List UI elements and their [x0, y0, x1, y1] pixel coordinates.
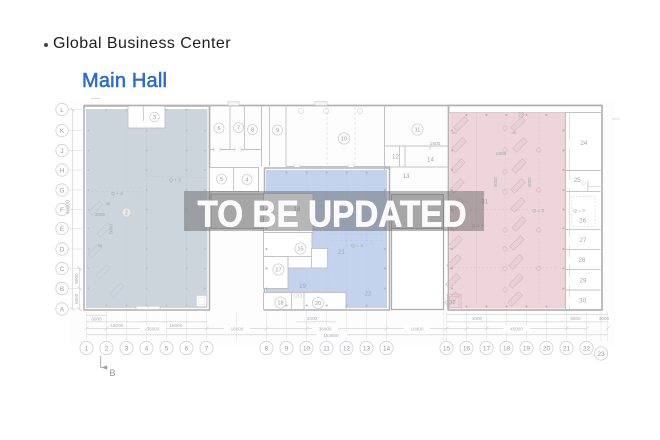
- svg-text:18400: 18400: [411, 327, 424, 332]
- svg-text:30: 30: [579, 298, 586, 305]
- svg-text:2000: 2000: [95, 212, 106, 217]
- svg-text:2: 2: [125, 210, 128, 216]
- svg-text:B: B: [60, 286, 64, 293]
- svg-text:22: 22: [365, 291, 372, 298]
- svg-text:H: H: [60, 167, 65, 174]
- svg-text:24: 24: [580, 140, 587, 147]
- svg-text:6000: 6000: [74, 293, 79, 304]
- svg-text:18000: 18000: [231, 327, 244, 332]
- svg-text:6000: 6000: [493, 177, 498, 187]
- svg-text:23: 23: [597, 351, 605, 358]
- svg-text:Q + 3: Q + 3: [111, 191, 123, 197]
- svg-text:20: 20: [543, 345, 551, 352]
- svg-text:6000: 6000: [570, 316, 581, 321]
- svg-text:6000: 6000: [527, 177, 532, 187]
- svg-text:45: 45: [98, 243, 103, 248]
- svg-text:45: 45: [452, 130, 457, 135]
- svg-text:18000: 18000: [170, 323, 183, 328]
- svg-text:14: 14: [383, 345, 391, 352]
- svg-text:A: A: [60, 306, 65, 313]
- svg-text:9: 9: [285, 345, 289, 352]
- svg-text:8: 8: [251, 128, 254, 134]
- svg-text:20: 20: [315, 301, 321, 307]
- svg-text:E: E: [60, 226, 64, 233]
- svg-text:13: 13: [403, 173, 410, 180]
- svg-text:7: 7: [237, 126, 240, 132]
- svg-text:17: 17: [275, 268, 281, 274]
- svg-text:3: 3: [153, 115, 156, 121]
- svg-text:28: 28: [579, 257, 586, 264]
- svg-text:12: 12: [392, 154, 399, 161]
- svg-text:11: 11: [415, 128, 421, 134]
- svg-text:8: 8: [265, 345, 269, 352]
- svg-text:15: 15: [443, 345, 451, 352]
- svg-text:153800: 153800: [323, 333, 339, 338]
- svg-text:17: 17: [483, 345, 491, 352]
- svg-text:16: 16: [463, 345, 471, 352]
- svg-text:19: 19: [523, 345, 531, 352]
- svg-text:45: 45: [106, 201, 111, 206]
- svg-text:1900: 1900: [430, 141, 441, 147]
- svg-text:14: 14: [427, 157, 434, 164]
- svg-text:6000: 6000: [91, 316, 102, 321]
- svg-text:Q = 3: Q = 3: [573, 208, 585, 213]
- svg-text:B: B: [109, 368, 115, 378]
- svg-text:D: D: [60, 246, 65, 253]
- svg-text:45: 45: [512, 130, 517, 135]
- svg-text:19: 19: [299, 283, 306, 290]
- svg-text:C: C: [60, 266, 65, 273]
- svg-text:10: 10: [303, 345, 311, 352]
- svg-text:5: 5: [165, 345, 169, 352]
- svg-text:7: 7: [205, 345, 209, 352]
- svg-text:21: 21: [563, 345, 571, 352]
- svg-text:11: 11: [323, 345, 330, 352]
- svg-text:1900: 1900: [496, 151, 507, 157]
- svg-text:18000: 18000: [110, 323, 123, 328]
- svg-text:2000: 2000: [307, 316, 318, 321]
- svg-text:22: 22: [583, 345, 591, 352]
- svg-text:6000: 6000: [109, 224, 114, 234]
- svg-text:38000: 38000: [319, 327, 332, 332]
- svg-text:F: F: [60, 207, 64, 214]
- svg-text:18: 18: [503, 345, 511, 352]
- svg-text:3: 3: [125, 345, 129, 352]
- svg-text:J: J: [60, 148, 63, 155]
- svg-text:13: 13: [363, 345, 371, 352]
- svg-text:Q = 3: Q = 3: [351, 243, 363, 249]
- svg-text:45000: 45000: [510, 327, 523, 332]
- svg-text:3000: 3000: [599, 316, 610, 321]
- svg-text:2: 2: [105, 345, 109, 352]
- svg-text:1: 1: [85, 345, 89, 352]
- svg-text:TO BE UPDATED: TO BE UPDATED: [198, 193, 467, 234]
- svg-text:40000: 40000: [66, 200, 72, 214]
- svg-text:4: 4: [245, 178, 248, 184]
- svg-text:6000: 6000: [74, 273, 79, 284]
- svg-text:9: 9: [276, 128, 279, 134]
- svg-text:Q + 3: Q + 3: [169, 178, 181, 184]
- svg-text:18: 18: [277, 301, 283, 307]
- svg-text:29: 29: [580, 278, 587, 285]
- svg-text:K: K: [60, 128, 65, 135]
- svg-text:32: 32: [449, 300, 455, 306]
- svg-text:15: 15: [297, 247, 303, 253]
- svg-text:25: 25: [574, 177, 581, 184]
- svg-text:6: 6: [185, 345, 189, 352]
- svg-text:Q = 3: Q = 3: [532, 208, 544, 214]
- svg-text:L: L: [60, 107, 64, 114]
- svg-text:21: 21: [338, 249, 345, 256]
- svg-text:5: 5: [220, 177, 223, 183]
- svg-text:12: 12: [343, 345, 351, 352]
- svg-text:G: G: [60, 187, 65, 194]
- svg-text:10: 10: [341, 137, 347, 143]
- svg-text:36000: 36000: [147, 327, 160, 332]
- svg-text:23: 23: [518, 113, 524, 119]
- svg-text:4: 4: [145, 345, 149, 352]
- svg-text:26: 26: [579, 218, 586, 225]
- svg-text:6: 6: [217, 126, 220, 132]
- svg-text:1000: 1000: [472, 316, 483, 321]
- svg-text:27: 27: [580, 237, 587, 244]
